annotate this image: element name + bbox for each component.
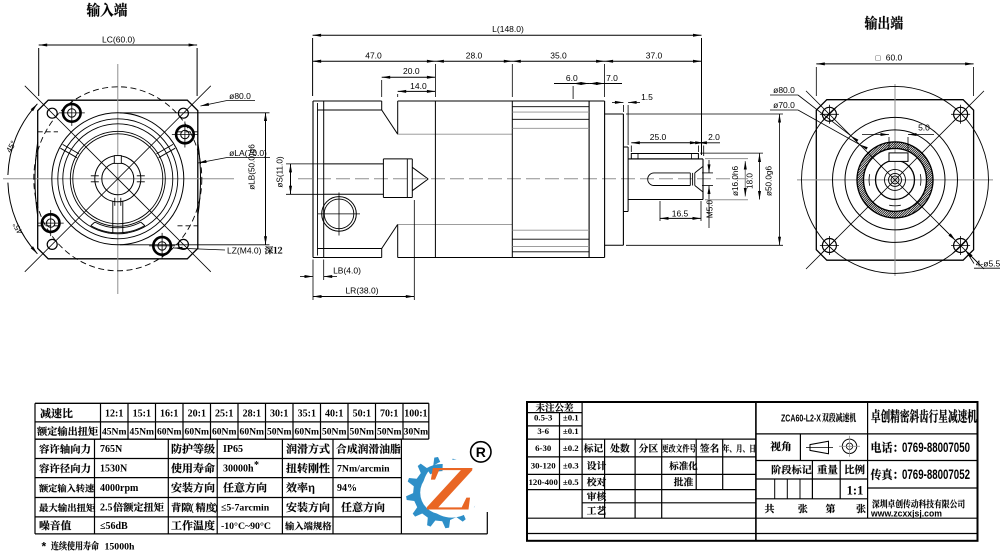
svg-text:35.0: 35.0 [550, 51, 567, 61]
svg-text:50Nm: 50Nm [322, 426, 347, 437]
svg-text:6-30: 6-30 [535, 443, 552, 453]
svg-text:R: R [476, 444, 486, 460]
svg-text:20:1: 20:1 [188, 409, 206, 420]
svg-text:765N: 765N [100, 444, 123, 455]
svg-text:ø70.0: ø70.0 [773, 100, 795, 110]
svg-text:45Nm: 45Nm [130, 426, 155, 437]
svg-text:20.0: 20.0 [403, 66, 420, 76]
svg-text:LC(60.0): LC(60.0) [102, 34, 135, 44]
svg-text:□: □ [876, 53, 881, 62]
svg-text:37.0: 37.0 [646, 51, 663, 61]
svg-text:70:1: 70:1 [380, 409, 398, 420]
svg-text:±0.1: ±0.1 [563, 413, 579, 423]
svg-text:15:1: 15:1 [133, 409, 151, 420]
svg-text:LR(38.0): LR(38.0) [345, 286, 378, 296]
svg-text:15000h: 15000h [105, 542, 135, 553]
svg-text:60Nm: 60Nm [240, 426, 265, 437]
svg-text:1:1: 1:1 [847, 484, 864, 498]
svg-text:-10°C~90°C: -10°C~90°C [221, 521, 271, 532]
svg-text:40:1: 40:1 [325, 409, 343, 420]
svg-text:): ) [214, 503, 217, 514]
svg-text:0769-88007050: 0769-88007050 [902, 440, 970, 455]
svg-text:50Nm: 50Nm [377, 426, 402, 437]
svg-text:LZ(M4.0): LZ(M4.0) [227, 246, 262, 256]
svg-text:0.5-3: 0.5-3 [534, 413, 553, 423]
svg-text:1530N: 1530N [100, 464, 128, 475]
svg-text:0769-88007052: 0769-88007052 [902, 467, 970, 482]
svg-text:±0.2: ±0.2 [563, 443, 579, 453]
svg-text:30Nm: 30Nm [404, 426, 429, 437]
svg-text:100:1: 100:1 [404, 409, 427, 420]
svg-text:6.0: 6.0 [566, 73, 578, 83]
svg-text:ø80.0: ø80.0 [773, 85, 795, 95]
svg-text:50Nm: 50Nm [350, 426, 375, 437]
svg-text:1.5: 1.5 [641, 92, 653, 102]
svg-text:94%: 94% [337, 483, 357, 494]
svg-text:30000h: 30000h [223, 464, 254, 475]
svg-text:ø80.0: ø80.0 [229, 91, 251, 101]
svg-text:25.0: 25.0 [650, 132, 667, 142]
svg-text:30-120: 30-120 [531, 461, 557, 471]
svg-text:5.0: 5.0 [918, 123, 930, 133]
svg-text:35:1: 35:1 [298, 409, 316, 420]
svg-text:ø50.0g6: ø50.0g6 [764, 166, 773, 196]
svg-text:IP65: IP65 [223, 444, 243, 455]
svg-text:L(148.0): L(148.0) [492, 24, 524, 34]
svg-text:50Nm: 50Nm [267, 426, 292, 437]
svg-text:14.0: 14.0 [410, 81, 427, 91]
svg-text:ø16.0h6: ø16.0h6 [731, 166, 740, 196]
svg-text:28:1: 28:1 [243, 409, 261, 420]
svg-text:7.0: 7.0 [606, 73, 618, 83]
svg-text:LB(4.0): LB(4.0) [333, 266, 361, 276]
svg-text:28.0: 28.0 [466, 51, 483, 61]
svg-text:øS(11.0): øS(11.0) [276, 156, 285, 188]
svg-text:45Nm: 45Nm [102, 426, 127, 437]
svg-text:25:1: 25:1 [215, 409, 233, 420]
svg-text:≤5-7arcmin: ≤5-7arcmin [221, 503, 270, 514]
svg-text:ZCA60-L2-X: ZCA60-L2-X [781, 413, 821, 424]
svg-text:60Nm: 60Nm [157, 426, 182, 437]
svg-text:12:1: 12:1 [105, 409, 123, 420]
svg-text:±0.5: ±0.5 [563, 477, 579, 487]
svg-text:60Nm: 60Nm [295, 426, 320, 437]
svg-text:*: * [254, 460, 259, 471]
svg-text:2.0: 2.0 [708, 132, 720, 142]
svg-text:18.0: 18.0 [745, 173, 754, 189]
svg-text:±0.1: ±0.1 [563, 426, 579, 436]
svg-text:30:1: 30:1 [270, 409, 288, 420]
svg-text:50:1: 50:1 [353, 409, 371, 420]
svg-text:±0.3: ±0.3 [563, 461, 579, 471]
svg-text:øLB(50.0)g6: øLB(50.0)g6 [248, 144, 257, 190]
svg-text:2.5: 2.5 [100, 503, 113, 514]
svg-text:*: * [42, 540, 47, 554]
svg-text:4000rpm: 4000rpm [100, 483, 139, 494]
svg-text:www.zcxxjsj.com: www.zcxxjsj.com [870, 509, 942, 520]
svg-text:7Nm/arcmin: 7Nm/arcmin [337, 464, 390, 475]
svg-text:≤56dB: ≤56dB [100, 521, 128, 532]
svg-text:4-ø5.5: 4-ø5.5 [976, 259, 1000, 269]
svg-text:M5.0: M5.0 [706, 199, 715, 218]
svg-text:16:1: 16:1 [160, 409, 178, 420]
svg-text:47.0: 47.0 [365, 51, 382, 61]
svg-text:3-6: 3-6 [537, 426, 549, 436]
svg-text:60.0: 60.0 [886, 52, 903, 62]
svg-text:60Nm: 60Nm [185, 426, 210, 437]
svg-text:60Nm: 60Nm [212, 426, 237, 437]
svg-text:16.5: 16.5 [672, 208, 689, 218]
svg-text:120-400: 120-400 [529, 477, 559, 487]
